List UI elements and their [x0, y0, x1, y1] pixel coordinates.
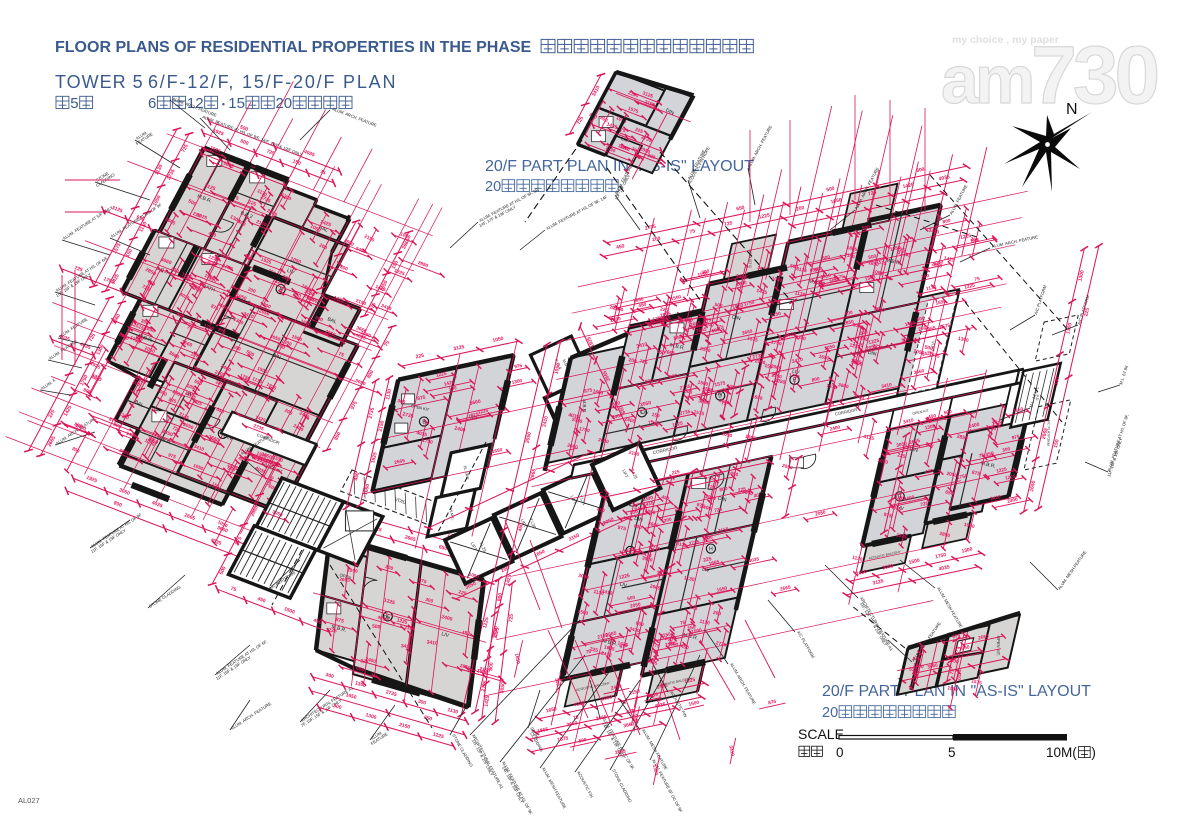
- svg-text:C: C: [640, 410, 644, 416]
- svg-text:1: 1: [228, 95, 236, 112]
- svg-text:H: H: [709, 546, 713, 552]
- svg-text:M.B.R.: M.B.R.: [582, 399, 587, 413]
- svg-text:5: 5: [70, 95, 78, 112]
- svg-text:0: 0: [836, 745, 844, 760]
- svg-text:500: 500: [372, 624, 381, 631]
- svg-text:725: 725: [508, 614, 515, 623]
- svg-text:1: 1: [1046, 745, 1054, 760]
- svg-text:M: M: [1061, 745, 1072, 760]
- svg-text:2: 2: [485, 179, 493, 195]
- svg-text:6/F-12/F, 15/F-20/F PLAN: 6/F-12/F, 15/F-20/F PLAN: [148, 72, 397, 92]
- svg-text:225: 225: [360, 658, 369, 665]
- svg-text:TOWER 5: TOWER 5: [55, 72, 144, 92]
- svg-text:0: 0: [830, 705, 838, 721]
- svg-text:0: 0: [1054, 745, 1062, 760]
- svg-text:SCALE: SCALE: [798, 726, 844, 742]
- svg-text:(: (: [1072, 745, 1077, 760]
- svg-text:2: 2: [276, 95, 284, 112]
- svg-text:450: 450: [462, 630, 471, 637]
- svg-text:5: 5: [237, 95, 245, 112]
- svg-text:am730: am730: [941, 30, 1157, 121]
- svg-text:N: N: [1066, 101, 1078, 118]
- svg-text:AL027: AL027: [18, 796, 40, 805]
- svg-text:OPEN KIT.: OPEN KIT.: [996, 636, 1001, 656]
- svg-text:FLOOR PLANS OF RESIDENTIAL PRO: FLOOR PLANS OF RESIDENTIAL PROPERTIES IN…: [55, 39, 532, 56]
- svg-text:): ): [1091, 745, 1096, 760]
- svg-text:A/C PLATFORM: A/C PLATFORM: [1046, 419, 1050, 445]
- svg-text:2: 2: [822, 705, 830, 721]
- svg-text:5: 5: [948, 745, 956, 760]
- svg-text:0: 0: [493, 179, 501, 195]
- svg-text:6: 6: [148, 95, 156, 112]
